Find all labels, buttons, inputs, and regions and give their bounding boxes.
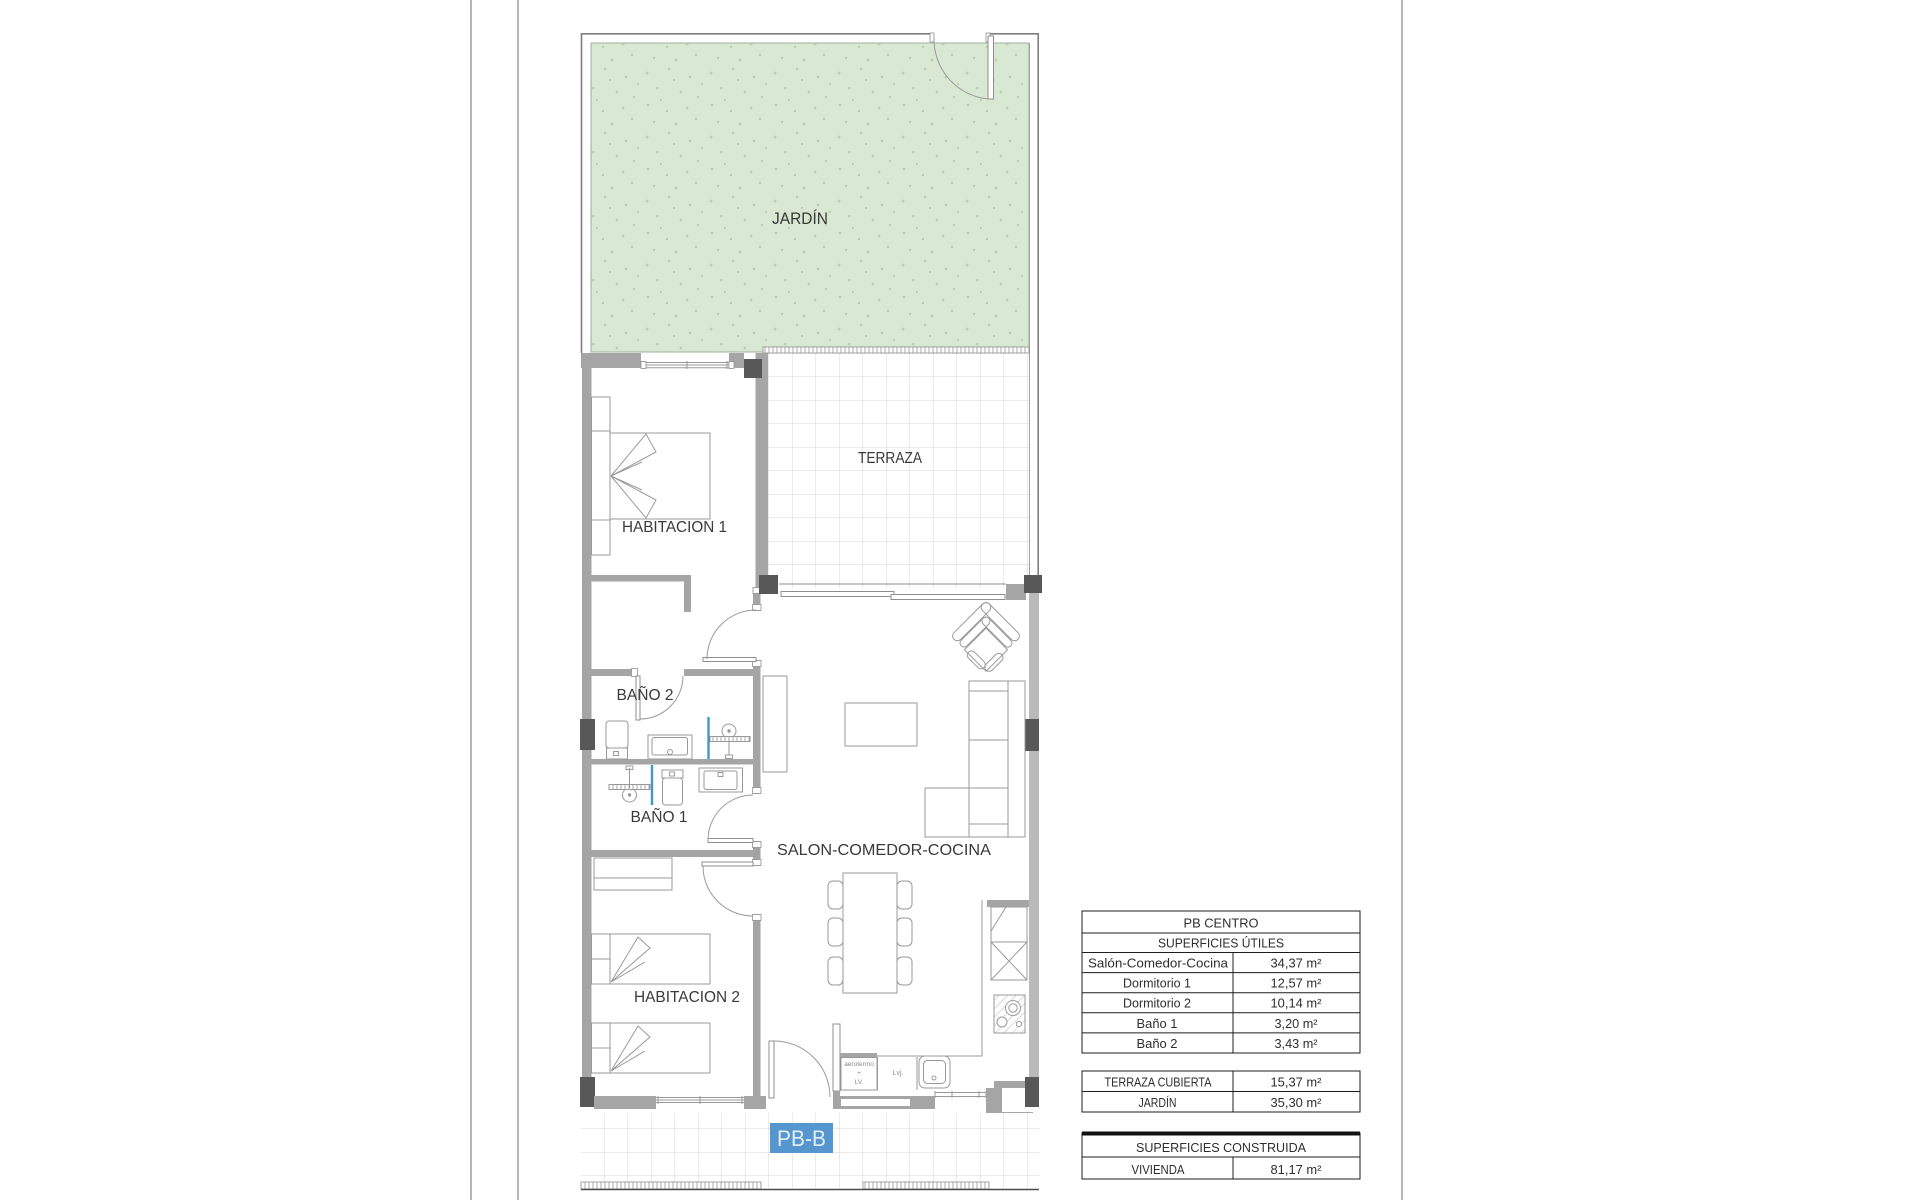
svg-text:JARDÍN: JARDÍN	[772, 209, 828, 228]
svg-text:JARDÍN: JARDÍN	[1139, 1095, 1177, 1110]
svg-text:10,14 m²: 10,14 m²	[1271, 996, 1323, 1011]
svg-text:PB-B: PB-B	[777, 1126, 826, 1151]
svg-text:PB CENTRO: PB CENTRO	[1184, 916, 1259, 931]
svg-text:TERRAZA: TERRAZA	[858, 450, 922, 467]
svg-text:Dormitorio 2: Dormitorio 2	[1123, 996, 1191, 1011]
svg-text:TERRAZA CUBIERTA: TERRAZA CUBIERTA	[1105, 1075, 1212, 1090]
svg-text:Dormitorio 1: Dormitorio 1	[1123, 976, 1191, 991]
svg-text:BAÑO 1: BAÑO 1	[631, 806, 688, 826]
svg-text:BAÑO 2: BAÑO 2	[617, 684, 674, 704]
svg-text:12,57 m²: 12,57 m²	[1271, 976, 1323, 991]
svg-text:3,43 m²: 3,43 m²	[1275, 1036, 1319, 1051]
svg-text:3,20 m²: 3,20 m²	[1275, 1016, 1319, 1031]
svg-text:Baño 1: Baño 1	[1137, 1016, 1178, 1031]
svg-text:aerotermo: aerotermo	[844, 1061, 874, 1068]
svg-text:Baño 2: Baño 2	[1137, 1036, 1178, 1051]
svg-text:VIVIENDA: VIVIENDA	[1132, 1162, 1185, 1177]
svg-text:HABITACION 2: HABITACION 2	[634, 989, 740, 1006]
svg-text:Lvj.: Lvj.	[893, 1070, 904, 1077]
svg-text:35,30 m²: 35,30 m²	[1271, 1095, 1323, 1110]
svg-text:LV.: LV.	[855, 1079, 864, 1086]
svg-text:Salón-Comedor-Cocina: Salón-Comedor-Cocina	[1088, 956, 1229, 971]
svg-text:SUPERFICIES CONSTRUIDA: SUPERFICIES CONSTRUIDA	[1136, 1140, 1306, 1155]
svg-text:81,17 m²: 81,17 m²	[1271, 1162, 1323, 1177]
svg-text:+: +	[857, 1070, 861, 1077]
svg-text:HABITACION 1: HABITACION 1	[622, 519, 727, 536]
svg-text:SALON-COMEDOR-COCINA: SALON-COMEDOR-COCINA	[777, 842, 991, 859]
svg-text:SUPERFICIES ÚTILES: SUPERFICIES ÚTILES	[1158, 936, 1284, 951]
svg-text:34,37 m²: 34,37 m²	[1271, 956, 1323, 971]
svg-text:15,37 m²: 15,37 m²	[1271, 1075, 1323, 1090]
